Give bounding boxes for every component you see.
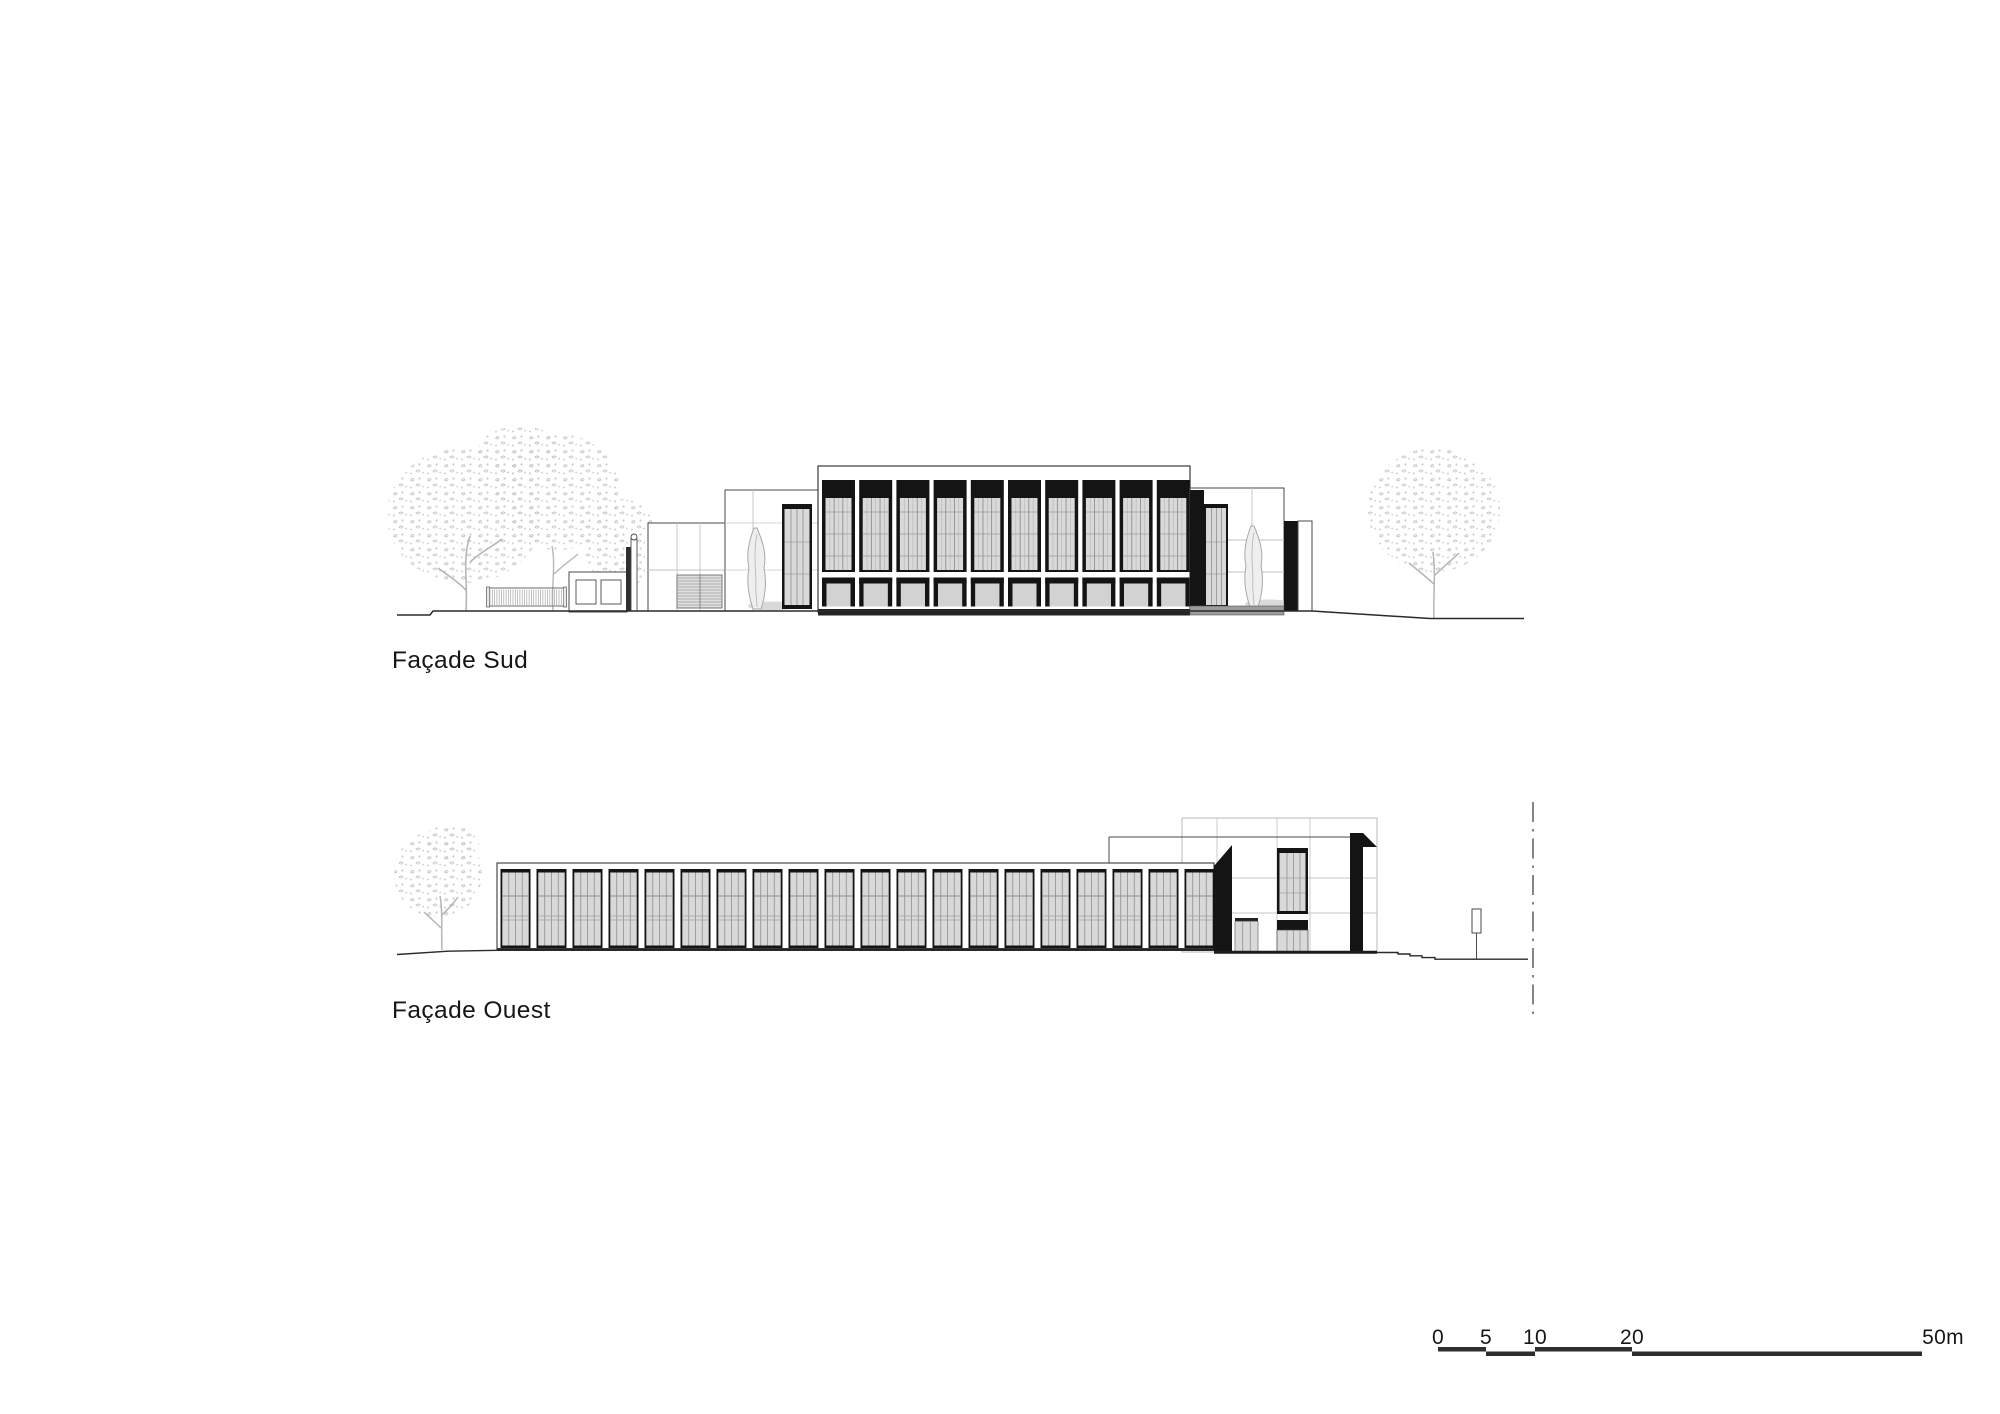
spandrel-header bbox=[1008, 578, 1041, 584]
spandrel-pier bbox=[822, 578, 827, 607]
spandrel-pier bbox=[888, 578, 893, 607]
spandrel-pier bbox=[971, 578, 976, 607]
spandrel-header bbox=[822, 578, 855, 584]
spandrel-header bbox=[1120, 578, 1153, 584]
sud-window-bay bbox=[934, 480, 967, 607]
sud-window-bay bbox=[896, 480, 929, 607]
spandrel-pier bbox=[925, 578, 930, 607]
spandrel-pier bbox=[999, 578, 1004, 607]
spandrel-header bbox=[1045, 578, 1078, 584]
spandrel-panel bbox=[827, 584, 851, 607]
spandrel-pier bbox=[1008, 578, 1013, 607]
spandrel-pier bbox=[851, 578, 856, 607]
entry-door-left bbox=[1235, 918, 1258, 952]
spandrel-panel bbox=[1124, 584, 1148, 607]
tree-right bbox=[1368, 448, 1500, 618]
spandrel-pier bbox=[962, 578, 967, 607]
scale-tick-50m: 50m bbox=[1922, 1326, 1964, 1349]
sud-window-bay bbox=[1157, 480, 1190, 607]
spandrel-pier bbox=[1157, 578, 1162, 607]
scale-segment-10-20 bbox=[1535, 1347, 1632, 1352]
ouest-window-bay bbox=[861, 869, 891, 948]
spandrel-pier bbox=[1074, 578, 1079, 607]
ouest-window-bay bbox=[1041, 869, 1071, 948]
spandrel-panel bbox=[1161, 584, 1185, 607]
spandrel-header bbox=[971, 578, 1004, 584]
ouest-window-bay bbox=[1113, 869, 1143, 948]
scale-segment-0-5 bbox=[1438, 1347, 1486, 1352]
sud-window-bay bbox=[822, 480, 855, 607]
ouest-window-bay bbox=[753, 869, 783, 948]
spandrel-pier bbox=[859, 578, 864, 607]
sud-window-bay bbox=[859, 480, 892, 607]
spandrel-header bbox=[859, 578, 892, 584]
facade-ouest-drawing bbox=[394, 802, 1533, 1016]
facade-sud-drawing bbox=[387, 426, 1524, 619]
glazed-bay-left bbox=[782, 504, 812, 609]
facade-sud-label: Façade Sud bbox=[392, 647, 528, 674]
fence bbox=[487, 587, 567, 607]
ouest-window-bay bbox=[681, 869, 711, 948]
scale-tick-5: 5 bbox=[1480, 1326, 1492, 1349]
spandrel-pier bbox=[1148, 578, 1153, 607]
right-wing bbox=[1190, 488, 1312, 615]
ouest-window-bay bbox=[969, 869, 999, 948]
spandrel-panel bbox=[1050, 584, 1074, 607]
ouest-window-bay bbox=[1077, 869, 1107, 948]
ouest-window-bay bbox=[933, 869, 963, 948]
entry-door-right bbox=[1277, 920, 1308, 953]
ouest-window-bay bbox=[609, 869, 639, 948]
ouest-window-bay bbox=[645, 869, 675, 948]
spandrel-header bbox=[896, 578, 929, 584]
spandrel-panel bbox=[938, 584, 962, 607]
curtain-wall-building bbox=[497, 863, 1215, 950]
sign-post bbox=[1472, 909, 1481, 959]
ouest-window-bay bbox=[717, 869, 747, 948]
spandrel-pier bbox=[896, 578, 901, 607]
dark-pier bbox=[1284, 521, 1298, 611]
sud-window-bay bbox=[1008, 480, 1041, 607]
sud-window-bay bbox=[1120, 480, 1153, 607]
ouest-window-bay bbox=[501, 869, 531, 948]
scale-segment-20-50 bbox=[1632, 1352, 1922, 1357]
base-plinth bbox=[818, 609, 1190, 616]
glazed-bay-right bbox=[1204, 504, 1228, 608]
scale-tick-0: 0 bbox=[1432, 1326, 1444, 1349]
ouest-window-bay bbox=[1005, 869, 1035, 948]
drawing-sheet: Façade Sud bbox=[0, 0, 2000, 1414]
ouest-window-bay bbox=[825, 869, 855, 948]
scale-tick-10: 10 bbox=[1523, 1326, 1547, 1349]
spandrel-panel bbox=[901, 584, 925, 607]
spandrel-panel bbox=[1013, 584, 1037, 607]
spandrel-panel bbox=[864, 584, 888, 607]
ouest-window-bay bbox=[897, 869, 927, 948]
spandrel-header bbox=[1157, 578, 1190, 584]
ouest-window-bay bbox=[1185, 869, 1215, 948]
kiosk bbox=[569, 572, 627, 612]
spandrel-pier bbox=[1037, 578, 1042, 607]
spandrel-pier bbox=[934, 578, 939, 607]
scale-segment-5-10 bbox=[1486, 1352, 1535, 1357]
ouest-window-bay bbox=[1149, 869, 1179, 948]
left-wing bbox=[648, 523, 725, 611]
spandrel-pier bbox=[1082, 578, 1087, 607]
ouest-window-bay bbox=[789, 869, 819, 948]
spandrel-header bbox=[1082, 578, 1115, 584]
scale-tick-20: 20 bbox=[1620, 1326, 1644, 1349]
main-block bbox=[818, 466, 1190, 616]
dark-pier bbox=[1190, 490, 1204, 611]
spandrel-pier bbox=[1045, 578, 1050, 607]
spandrel-pier bbox=[1111, 578, 1116, 607]
ouest-window-bay bbox=[573, 869, 603, 948]
facade-ouest-label: Façade Ouest bbox=[392, 997, 551, 1024]
dark-reveal-right bbox=[1350, 833, 1363, 952]
scale-bar: 0 5 10 20 50m bbox=[1432, 1326, 1964, 1356]
spandrel-panel bbox=[975, 584, 999, 607]
spandrel-header bbox=[934, 578, 967, 584]
tree-ouest bbox=[394, 824, 482, 950]
spandrel-panel bbox=[1087, 584, 1111, 607]
tall-window bbox=[1277, 848, 1308, 914]
spandrel-pier bbox=[1120, 578, 1125, 607]
ouest-window-bay bbox=[537, 869, 567, 948]
spandrel-pier bbox=[1185, 578, 1190, 607]
louver-door bbox=[677, 575, 722, 608]
sud-window-bay bbox=[1045, 480, 1078, 607]
sud-window-bay bbox=[971, 480, 1004, 607]
sud-window-bay bbox=[1082, 480, 1115, 607]
